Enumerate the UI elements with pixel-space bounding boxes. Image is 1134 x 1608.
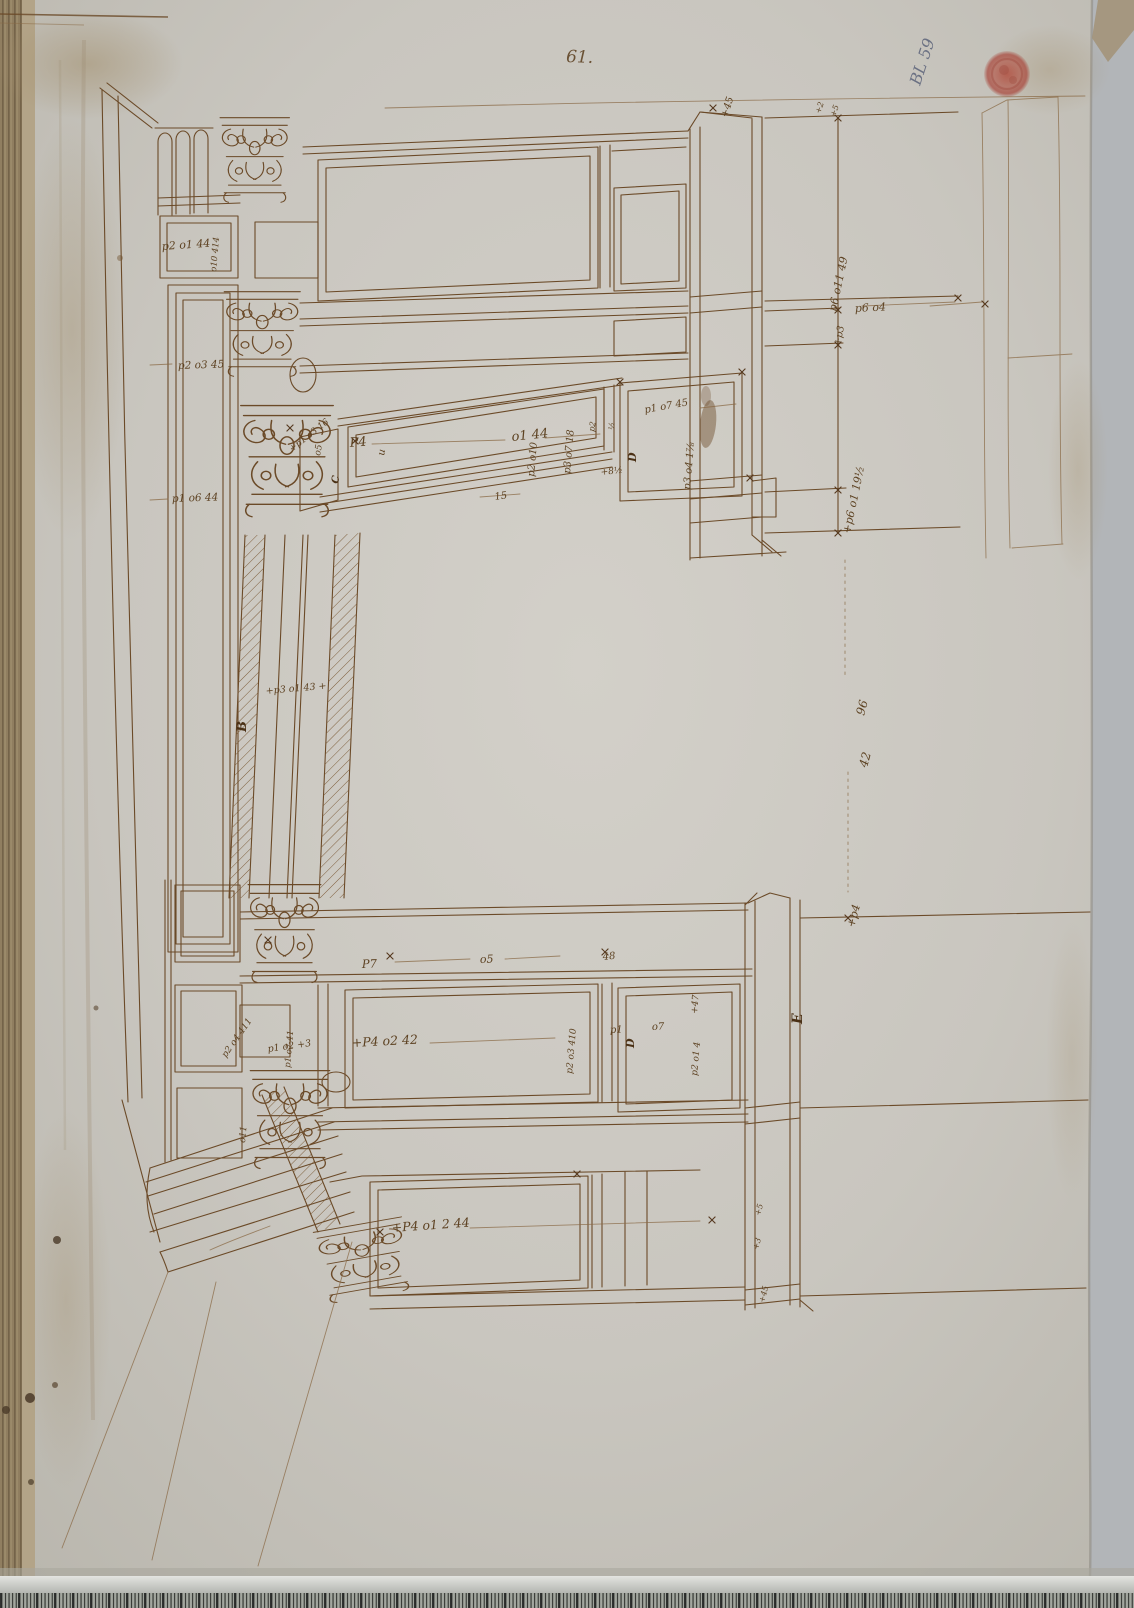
letter-E: E (790, 1013, 806, 1025)
dimension-label: +8½ (600, 465, 623, 478)
dimension-label: +47 (690, 994, 702, 1014)
dimension-label: p1 (610, 1025, 623, 1036)
dimension-label: o11 (238, 1126, 249, 1144)
ink-spot (2, 1406, 10, 1414)
book-page-edges (0, 0, 22, 1608)
ink-spot (117, 255, 123, 261)
ruler-edge (0, 1576, 1134, 1593)
ink-spot (52, 1382, 58, 1388)
letter-B: B (235, 721, 250, 733)
dimension-label: ½ (607, 422, 617, 431)
ink-smudge (701, 386, 711, 406)
folio-number: 61. (566, 47, 594, 68)
dimension-label: p6 o4 (854, 300, 886, 315)
dimension-label: p2 (587, 421, 598, 433)
dimension-label: o5 (313, 444, 325, 457)
dimension-label: P7 (361, 956, 378, 971)
dimension-label: 48 (601, 951, 616, 963)
manuscript-photo: +45 +2 +5 p2 o1 44 o10 414 p2 o3 45 p1 o… (0, 0, 1134, 1608)
dimension-label: p2 o3 45 (178, 358, 225, 372)
library-stamp (984, 51, 1030, 97)
ink-spot (94, 1006, 99, 1011)
dimension-label: 15 (494, 490, 508, 503)
letter-D-upper: D (626, 452, 639, 463)
dimension-label: o5 (480, 953, 494, 966)
ruler-ticks-major (0, 1593, 1134, 1608)
ink-spot (53, 1236, 61, 1244)
letter-D-lower: D (624, 1038, 637, 1049)
ruler (0, 1568, 1134, 1608)
dimension-label: p1 o6 44 (172, 491, 219, 505)
dimension-label: P4 (348, 435, 367, 452)
dimension-label: o7 (652, 1022, 665, 1033)
ink-spot (28, 1479, 34, 1485)
ink-spot (25, 1393, 35, 1403)
backdrop-right (1089, 0, 1134, 1578)
